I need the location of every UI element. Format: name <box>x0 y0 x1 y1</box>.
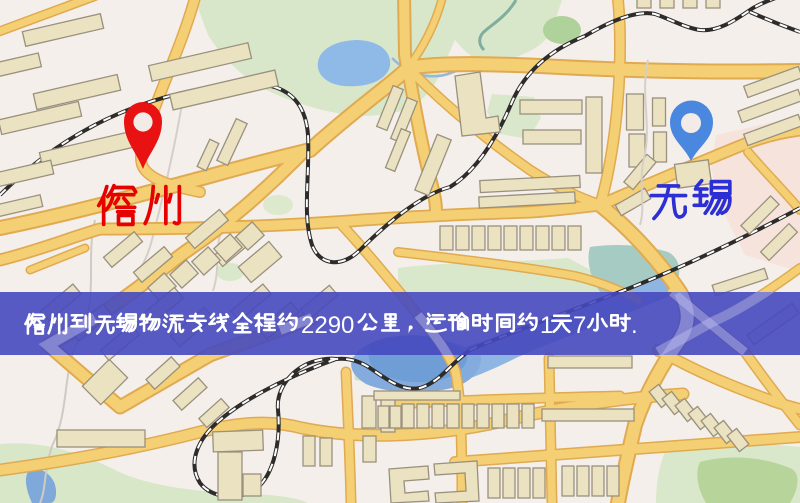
svg-text:7: 7 <box>573 312 586 339</box>
svg-text:2290: 2290 <box>301 312 354 339</box>
svg-text:.: . <box>631 312 638 339</box>
svg-text:1: 1 <box>540 312 553 339</box>
